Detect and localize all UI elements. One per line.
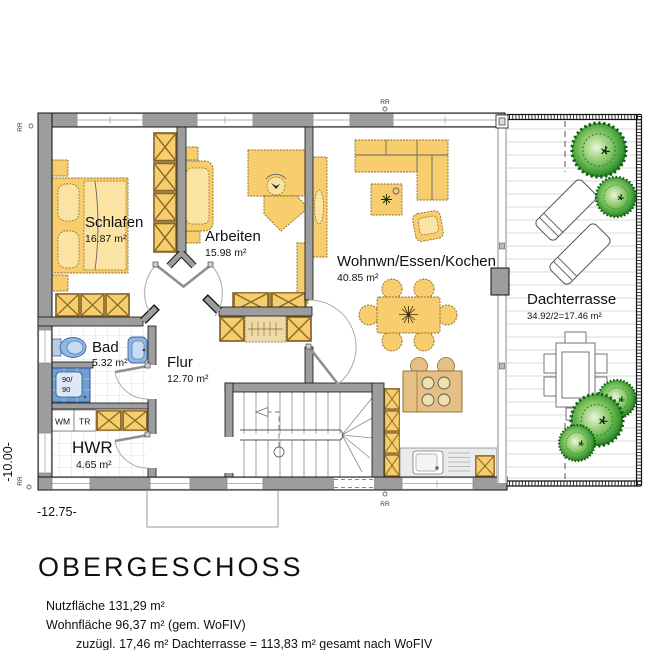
washing-machine-label: WM [55, 417, 70, 427]
coffee-table [371, 184, 402, 215]
hall-closet [220, 316, 311, 342]
balcony-below-outline [147, 490, 278, 527]
dining-chair [382, 331, 402, 351]
stair-treads [244, 392, 372, 477]
nightstand [52, 160, 68, 176]
door-wohnen [306, 300, 356, 384]
svg-text:RR: RR [380, 501, 390, 508]
room-name-bad: Bad [92, 339, 119, 356]
plant [596, 177, 636, 217]
door-opening-hwr [147, 434, 157, 468]
window [150, 478, 190, 490]
wall-stair-top [225, 383, 373, 392]
wardrobe-column [154, 133, 176, 252]
shower-wall [52, 362, 93, 368]
dining-chair [382, 279, 402, 299]
dining-chair [359, 305, 379, 325]
summary-line-3: zuzügl. 17,46 m² Dachterrasse = 113,83 m… [76, 637, 433, 650]
wall-stair-right [372, 383, 384, 477]
summary-line-1: Nutzfläche 131,29 m² [46, 599, 165, 613]
door-opening-stair [224, 437, 234, 473]
door-opening-bad [147, 365, 157, 399]
room-name-dachterrasse: Dachterrasse [527, 291, 616, 308]
glass-wall-terrace [491, 115, 509, 483]
wall-bad-hwr [52, 403, 148, 409]
shower: 90/ 90 [52, 368, 90, 402]
room-name-schlafen: Schlafen [85, 214, 143, 231]
window [402, 478, 473, 490]
floor-plan-drawing: 90/ 90 WM TR [0, 0, 650, 650]
dining-chair [414, 331, 434, 351]
room-area-bad: 5.32 m² [92, 357, 128, 369]
window [197, 114, 253, 127]
terrace-door [491, 268, 509, 295]
kitchen-island [403, 371, 462, 412]
armchair [412, 210, 444, 242]
room-name-flur: Flur [167, 354, 193, 371]
stair-bottom-dashed-opening [334, 478, 374, 490]
wall-arbeiten-wohnen [305, 127, 313, 300]
title-block: OBERGESCHOSS Nutzfläche 131,29 m² Wohnfl… [38, 552, 433, 650]
shower-size-label: 90/ [62, 375, 73, 384]
pillow [58, 184, 79, 221]
room-area-arbeiten: 15.98 m² [205, 247, 247, 259]
room-area-wohnen: 40.85 m² [337, 272, 379, 284]
wardrobe-bottom [56, 294, 129, 316]
direction-arrow [256, 408, 268, 417]
window [77, 114, 143, 127]
rr-marker: RR [380, 99, 390, 111]
hwr-fixtures: WM TR [52, 410, 147, 431]
room-area-schlafen: 16.87 m² [85, 233, 127, 245]
room-area-dachterrasse: 34.92/2=17.46 m² [527, 311, 602, 322]
svg-text:RR: RR [17, 122, 24, 132]
dining-table-set [359, 279, 457, 351]
summary-line-2: Wohnfläche 96,37 m² (gem. WoFIV) [46, 618, 246, 632]
shower-size-label: 90 [62, 385, 70, 394]
plant [572, 123, 626, 177]
dimension-width: -12.75- [37, 505, 77, 519]
pantry-column [385, 389, 400, 476]
rr-marker: RR [17, 122, 33, 132]
dryer-label: TR [79, 417, 90, 427]
rr-marker: RR [380, 492, 390, 508]
wall-schlafen-arbeiten [177, 127, 186, 255]
plant [559, 425, 595, 461]
window [39, 433, 52, 473]
window [39, 330, 52, 363]
pillow [58, 231, 79, 268]
window [52, 478, 90, 490]
wall-arbeiten-flur [219, 307, 312, 316]
sink [128, 337, 147, 363]
kitchen [385, 358, 497, 478]
stair-railing [240, 430, 343, 440]
room-name-hwr: HWR [72, 438, 113, 457]
window [393, 114, 497, 127]
svg-text:RR: RR [17, 476, 24, 486]
dining-chair [414, 279, 434, 299]
window [313, 114, 350, 127]
staircase [240, 392, 372, 477]
window [227, 478, 263, 490]
room-area-hwr: 4.65 m² [76, 459, 112, 471]
wall-flur-wohnen [305, 347, 313, 387]
plan-title: OBERGESCHOSS [38, 552, 304, 582]
svg-text:RR: RR [380, 99, 390, 106]
room-area-flur: 12.70 m² [167, 373, 209, 385]
floor-plan-page: 90/ 90 WM TR [0, 0, 650, 650]
nightstand [52, 275, 68, 291]
desk [248, 150, 308, 231]
rr-marker: RR [17, 476, 31, 489]
kitchen-cabinet [476, 456, 494, 476]
toilet [52, 338, 86, 358]
dimension-height: -10.00- [1, 442, 15, 482]
living-dining-kitchen-furniture [311, 140, 497, 477]
room-name-arbeiten: Arbeiten [205, 228, 261, 245]
room-name-wohnen: Wohnwn/Essen/Kochen [337, 253, 496, 270]
wall-schlafen-bad [38, 317, 143, 326]
